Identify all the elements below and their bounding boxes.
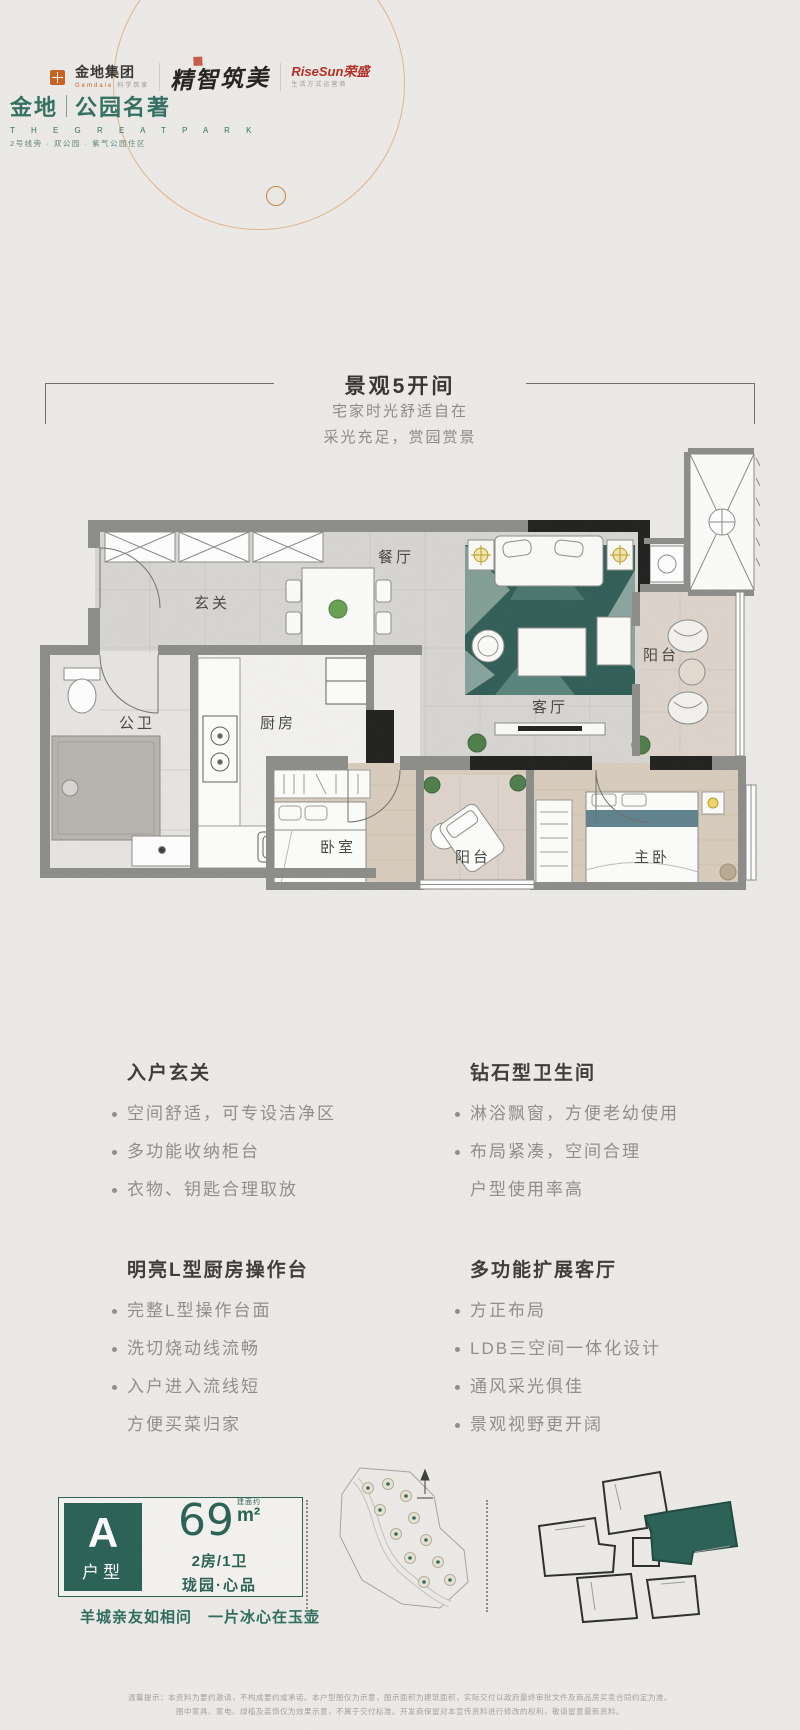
- unit-info-block: 69 建面约 m² 2房/1卫 珑园·心品: [142, 1503, 297, 1591]
- unit-type-label: 户型: [82, 1558, 124, 1583]
- room-label-bedroom: 卧室: [320, 839, 356, 856]
- gemdale-slogan: Gemdale科学筑家: [75, 83, 149, 90]
- gemdale-logo-icon: [50, 70, 65, 85]
- bullet-dot: [455, 1150, 460, 1155]
- page-subtitle-1: 宅家时光舒适自在: [0, 400, 800, 421]
- feature-bathroom: 钻石型卫生间 淋浴飘窗，方便老幼使用 布局紧凑，空间合理 户型使用率高: [455, 1058, 795, 1209]
- gemdale-en: Gemdale: [75, 83, 113, 89]
- feature-bullet: LDB三空间一体化设计: [455, 1330, 795, 1368]
- bullet-text: 入户进入流线短: [127, 1368, 260, 1406]
- poster: 金地集团 Gemdale科学筑家 精智筑美 RiseSun荣盛 生活方式运营商 …: [0, 0, 800, 1730]
- dotted-separator: [486, 1500, 488, 1612]
- room-label-balcony-bottom: 阳台: [455, 849, 491, 866]
- room-label-kitchen: 厨房: [260, 715, 296, 732]
- highlighted-unit: [645, 1502, 737, 1564]
- unit-badge: A 户型 69 建面约 m² 2房/1卫 珑园·心品: [58, 1497, 303, 1597]
- page-title: 景观5开间: [0, 370, 800, 400]
- unit-spec: 2房/1卫: [192, 1550, 248, 1571]
- elevator-shaft: [690, 454, 760, 590]
- bullet-dot: [455, 1347, 460, 1352]
- red-seal-icon: [194, 57, 203, 66]
- feature-kitchen: 明亮L型厨房操作台 完整L型操作台面 洗切烧动线流畅 入户进入流线短 方便买菜归…: [112, 1255, 452, 1444]
- divider: [66, 95, 67, 117]
- feature-title: 明亮L型厨房操作台: [127, 1255, 452, 1282]
- floor-plan: 玄关 公卫 厨房 餐厅 客厅 阳台 卧室 阳台 主卧: [40, 440, 760, 890]
- risesun-slogan: 生活方式运营商: [291, 82, 369, 89]
- building-key-plan: [525, 1460, 765, 1635]
- floor-plan-svg: 玄关 公卫 厨房 餐厅 客厅 阳台 卧室 阳台 主卧: [40, 440, 760, 890]
- unit-area-unit: m²: [237, 1506, 260, 1527]
- north-arrow-icon: [417, 1470, 433, 1498]
- room-label-balcony-right: 阳台: [643, 647, 679, 664]
- decor-ring-small: [266, 186, 286, 206]
- bullet-text: 衣物、钥匙合理取放: [127, 1171, 298, 1209]
- feature-bullet: 方正布局: [455, 1292, 795, 1330]
- feature-bullet: 多功能收纳柜台: [112, 1133, 452, 1171]
- project-name-en: T H E G R E A T P A R K: [10, 126, 258, 135]
- room-label-dining: 餐厅: [378, 549, 414, 566]
- footer-disclaimer-line2: 图中家具、家电、绿植及装饰仅为效果示意，不属于交付标准。开发商保留对本宣传资料进…: [40, 1706, 760, 1717]
- unit-letter-block: A 户型: [64, 1503, 142, 1591]
- room-label-hall: 玄关: [194, 595, 230, 612]
- bullet-dot: [455, 1309, 460, 1314]
- feature-bullet: 入户进入流线短: [112, 1368, 452, 1406]
- divider: [159, 63, 160, 91]
- project-brand: 金地: [10, 90, 58, 122]
- room-label-living: 客厅: [532, 699, 568, 716]
- bullet-dot: [112, 1347, 117, 1352]
- feature-bullet: 空间舒适，可专设洁净区: [112, 1095, 452, 1133]
- project-logo: 金地 公园名著 T H E G R E A T P A R K 2号线旁 · 双…: [0, 90, 756, 149]
- bullet-dot: [112, 1150, 117, 1155]
- bullet-text: LDB三空间一体化设计: [470, 1330, 661, 1368]
- feature-entry-hall: 入户玄关 空间舒适，可专设洁净区 多功能收纳柜台 衣物、钥匙合理取放: [112, 1058, 452, 1209]
- bullet-text: 方便买菜归家: [127, 1406, 241, 1444]
- feature-bullet: 完整L型操作台面: [112, 1292, 452, 1330]
- feature-living: 多功能扩展客厅 方正布局 LDB三空间一体化设计 通风采光俱佳 景观视野更开阔: [455, 1255, 795, 1444]
- poem-tagline: 羊城亲友如相问 一片冰心在玉壶: [80, 1606, 320, 1627]
- unit-letter: A: [88, 1512, 118, 1554]
- bullet-text: 完整L型操作台面: [127, 1292, 271, 1330]
- bullet-dot: [455, 1423, 460, 1428]
- dotted-separator: [306, 1500, 308, 1612]
- bullet-dot: [455, 1112, 460, 1117]
- project-tagline: 2号线旁 · 双公园 · 紫气公园住区: [10, 138, 258, 149]
- bullet-dot: [112, 1188, 117, 1193]
- feature-title: 入户玄关: [127, 1058, 452, 1085]
- feature-bullet: 景观视野更开阔: [455, 1406, 795, 1444]
- feature-title: 钻石型卫生间: [470, 1058, 795, 1085]
- bullet-dot: [455, 1385, 460, 1390]
- bullet-text: 洗切烧动线流畅: [127, 1330, 260, 1368]
- entry-wardrobe: [105, 532, 323, 562]
- bullet-text: 淋浴飘窗，方便老幼使用: [470, 1095, 679, 1133]
- project-name: 公园名著: [75, 90, 171, 122]
- feature-bullet: 通风采光俱佳: [455, 1368, 795, 1406]
- feature-bullet: 布局紧凑，空间合理: [455, 1133, 795, 1171]
- gemdale-slogan-cn: 科学筑家: [117, 83, 149, 89]
- feature-bullet: 洗切烧动线流畅: [112, 1330, 452, 1368]
- bullet-dot: [112, 1309, 117, 1314]
- site-plan: [322, 1462, 482, 1625]
- bullet-text: 方正布局: [470, 1292, 546, 1330]
- feature-title: 多功能扩展客厅: [470, 1255, 795, 1282]
- bullet-dot: [112, 1385, 117, 1390]
- bullet-text: 多功能收纳柜台: [127, 1133, 260, 1171]
- brand-strip: 金地集团 Gemdale科学筑家 精智筑美 RiseSun荣盛 生活方式运营商: [50, 60, 800, 94]
- unit-product: 珑园·心品: [182, 1574, 257, 1595]
- bullet-text: 景观视野更开阔: [470, 1406, 603, 1444]
- risesun-name: RiseSun荣盛: [291, 65, 369, 79]
- bullet-text: 布局紧凑，空间合理: [470, 1133, 641, 1171]
- room-label-master: 主卧: [634, 849, 670, 866]
- bullet-dot: [112, 1112, 117, 1117]
- gemdale-name: 金地集团: [75, 65, 149, 80]
- bullet-text: 户型使用率高: [470, 1171, 584, 1209]
- feature-bullet: 衣物、钥匙合理取放: [112, 1171, 452, 1209]
- feature-bullet-cont: 户型使用率高: [470, 1171, 795, 1209]
- unit-area-value: 69: [178, 1499, 234, 1543]
- divider: [280, 63, 281, 91]
- footer-disclaimer-line1: 温馨提示：本资料为要约邀请，不构成要约或承诺。本户型图仅为示意，图示面积为建筑面…: [40, 1692, 760, 1703]
- bullet-text: 通风采光俱佳: [470, 1368, 584, 1406]
- feature-bullet: 淋浴飘窗，方便老幼使用: [455, 1095, 795, 1133]
- feature-bullet-cont: 方便买菜归家: [127, 1406, 452, 1444]
- room-label-bath: 公卫: [119, 715, 155, 732]
- bullet-text: 空间舒适，可专设洁净区: [127, 1095, 336, 1133]
